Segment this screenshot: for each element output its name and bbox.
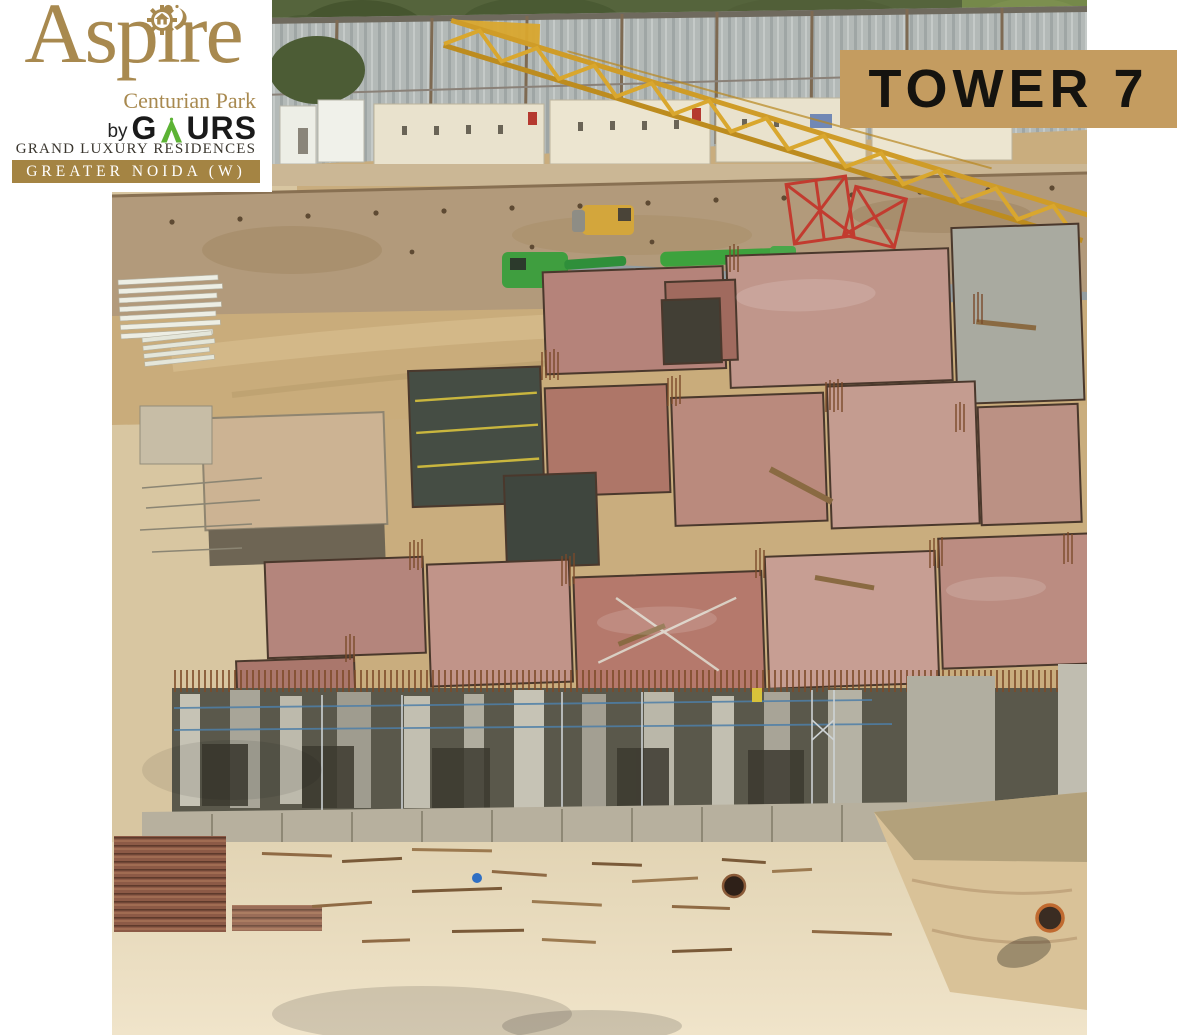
plank-stack	[114, 836, 226, 932]
flag	[752, 688, 762, 702]
gaurs-peak-icon	[160, 117, 183, 144]
developer-letters-urs: URS	[186, 112, 257, 144]
tower-badge-label: TOWER 7	[868, 62, 1148, 116]
storage-structure	[140, 406, 212, 464]
water-drum	[472, 873, 482, 883]
developer-row: by G URS	[107, 112, 257, 144]
ground-floor-structure	[172, 664, 1087, 822]
poster-page: Aspire	[0, 0, 1200, 1035]
brand-logo-card: Aspire	[0, 0, 272, 192]
gear-house-icon	[146, 2, 194, 42]
brand-name: Aspire	[0, 0, 266, 78]
developer-letter-g: G	[132, 112, 158, 144]
by-label: by	[107, 122, 127, 141]
location-bar: GREATER NOIDA (W)	[12, 160, 260, 183]
tar-drum	[723, 875, 745, 897]
plank-pile	[232, 905, 322, 931]
tower-badge: TOWER 7	[840, 50, 1177, 128]
brand-tagline: GRAND LUXURY RESIDENCES	[0, 141, 272, 158]
